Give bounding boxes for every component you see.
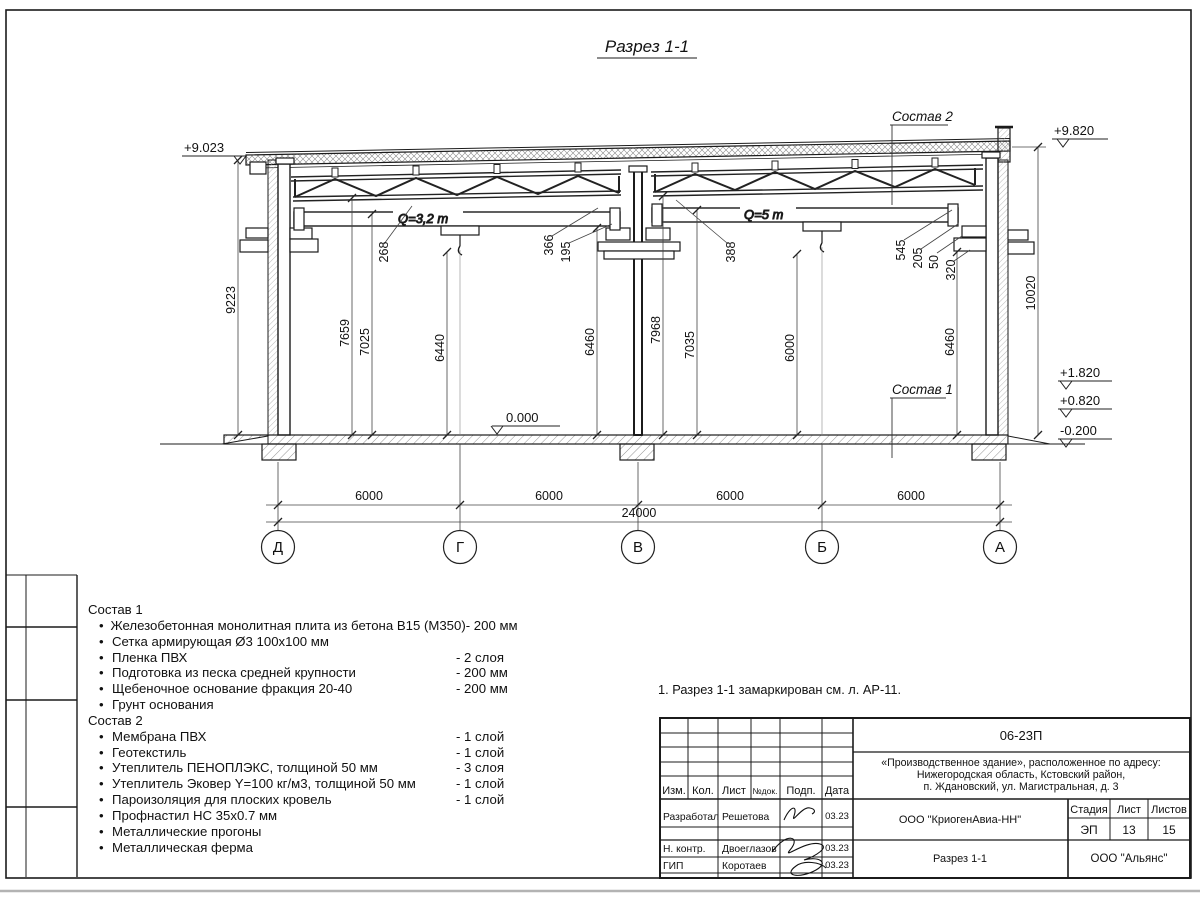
dim-9223: 9223 <box>224 286 238 314</box>
col-list: Лист <box>722 785 746 797</box>
axis-bubbles: Д Г В Б А <box>262 531 1017 564</box>
bullet-icon: • <box>88 618 111 634</box>
col-podp: Подп. <box>786 785 815 797</box>
crane-capacity-right: Q=5 т <box>744 207 784 222</box>
bullet-icon: • <box>88 776 112 792</box>
elevation-floor: 0.000 <box>506 410 539 425</box>
row2-name: Двоеглазов <box>722 844 777 855</box>
col-data: Дата <box>825 785 850 797</box>
bullet-icon: • <box>88 840 112 856</box>
list-item: •Сетка армирующая Ø3 100х100 мм <box>88 634 540 650</box>
dim-366: 366 <box>542 235 556 256</box>
signature-1 <box>784 808 814 820</box>
sheet-note: 1. Разрез 1-1 замаркирован см. л. АР-11. <box>658 682 901 697</box>
item-name: Сетка армирующая Ø3 100х100 мм <box>112 634 456 650</box>
sostav1-title: Состав 1 <box>88 602 540 618</box>
list-item: •Мембрана ПВХ- 1 слой <box>88 729 540 745</box>
axis-G: Г <box>456 539 464 556</box>
item-value: - 200 мм <box>466 618 540 634</box>
list-item: •Подготовка из песка средней крупности- … <box>88 665 540 681</box>
column-right <box>954 152 1034 435</box>
row1-role: Разработал <box>663 811 719 823</box>
foundation-middle <box>620 444 654 460</box>
crane-trolley-left <box>441 226 479 235</box>
truss-right <box>651 158 983 196</box>
item-value <box>456 808 540 824</box>
elevation-0820: +0.820 <box>1060 393 1100 408</box>
item-name: Мембрана ПВХ <box>112 729 456 745</box>
dim-7025: 7025 <box>358 328 372 356</box>
col-izm: Изм. <box>662 785 686 797</box>
item-value: - 200 мм <box>456 681 540 697</box>
bullet-icon: • <box>88 634 112 650</box>
dim-6000-hook: 6000 <box>783 334 797 362</box>
sheet-value: 13 <box>1122 823 1136 837</box>
bullet-icon: • <box>88 808 112 824</box>
list-item: •Утеплитель Эковер Y=100 кг/м3, толщиной… <box>88 776 540 792</box>
col-kol: Кол. <box>692 785 714 797</box>
elevation-1820: +1.820 <box>1060 365 1100 380</box>
list-item: •Профнастил НС 35х0.7 мм <box>88 808 540 824</box>
page-title: Разрез 1-1 <box>597 37 697 58</box>
row1-name: Решетова <box>722 812 769 823</box>
item-name: Железобетонная монолитная плита из бетон… <box>111 618 466 634</box>
item-value <box>456 697 540 713</box>
floor-slab <box>160 435 1085 460</box>
item-name: Щебеночное основание фракция 20-40 <box>112 681 456 697</box>
roof-edge-left <box>250 162 266 174</box>
corbel-right-inner <box>962 226 986 237</box>
project-address-2: Нижегородская область, Кстовский район, <box>917 769 1125 781</box>
item-name: Пароизоляция для плоских кровель <box>112 792 456 808</box>
item-value: - 200 мм <box>456 665 540 681</box>
dim-6000-2: 6000 <box>535 489 563 503</box>
bullet-icon: • <box>88 665 112 681</box>
bullet-icon: • <box>88 681 112 697</box>
dim-50: 50 <box>927 255 941 269</box>
company-name: ООО "КриогенАвиа-НН" <box>899 814 1021 826</box>
crane-capacity-left: Q=3,2 т <box>398 211 448 226</box>
sheets-label: Листов <box>1151 804 1187 816</box>
dim-388: 388 <box>724 242 738 263</box>
bullet-icon: • <box>88 697 112 713</box>
item-value <box>456 824 540 840</box>
list-item: •Пароизоляция для плоских кровель- 1 сло… <box>88 792 540 808</box>
corbel-middle-right <box>646 228 670 240</box>
row2-date: 03.23 <box>825 843 849 854</box>
sheets-value: 15 <box>1162 823 1176 837</box>
bullet-icon: • <box>88 792 112 808</box>
list-item: •Геотекстиль- 1 слой <box>88 745 540 761</box>
dim-195: 195 <box>559 242 573 263</box>
item-value: - 1 слой <box>456 792 540 808</box>
list-item: •Щебеночное основание фракция 20-40- 200… <box>88 681 540 697</box>
bullet-icon: • <box>88 729 112 745</box>
item-value <box>456 840 540 856</box>
list-item: •Утеплитель ПЕНОПЛЭКС, толщиной 50 мм- 3… <box>88 760 540 776</box>
crane-trolley-right <box>803 222 841 231</box>
row1-date: 03.23 <box>825 811 849 822</box>
dim-6000-4: 6000 <box>897 489 925 503</box>
org-name: ООО "Альянс" <box>1091 853 1168 865</box>
dim-7659: 7659 <box>338 319 352 347</box>
dim-6440: 6440 <box>433 334 447 362</box>
axis-V: В <box>633 539 643 556</box>
elevation-minus0200: -0.200 <box>1060 423 1097 438</box>
bullet-icon: • <box>88 650 112 666</box>
axis-D: Д <box>273 539 283 556</box>
item-name: Грунт основания <box>112 697 456 713</box>
drawing-sheet: Разрез 1-1 <box>0 0 1200 900</box>
item-name: Металлическая ферма <box>112 840 456 856</box>
dim-205: 205 <box>911 248 925 269</box>
item-name: Утеплитель ПЕНОПЛЭКС, толщиной 50 мм <box>112 760 456 776</box>
item-value: - 1 слой <box>456 745 540 761</box>
sostav2-title: Состав 2 <box>88 713 540 729</box>
col-ndok: №док. <box>753 786 778 796</box>
item-value <box>456 634 540 650</box>
item-value: - 3 слоя <box>456 760 540 776</box>
dim-268: 268 <box>377 242 391 263</box>
title-block-text: 06-23П «Производственное здание», распол… <box>662 728 1187 872</box>
bracket-left-outer <box>246 228 268 238</box>
bracket-right-outer <box>1008 230 1028 240</box>
list-item: •Железобетонная монолитная плита из бето… <box>88 618 540 634</box>
foundation-left <box>262 444 296 460</box>
dim-7968: 7968 <box>649 316 663 344</box>
composition-leaders: Состав 2 Состав 1 <box>890 109 953 458</box>
item-name: Металлические прогоны <box>112 824 456 840</box>
truss-left <box>291 163 621 201</box>
list-item: •Металлические прогоны <box>88 824 540 840</box>
dim-545: 545 <box>894 240 908 261</box>
item-value: - 2 слоя <box>456 650 540 666</box>
doc-number: 06-23П <box>1000 728 1043 743</box>
foundation-right <box>972 444 1006 460</box>
item-name: Подготовка из песка средней крупности <box>112 665 456 681</box>
sostav1-ref-label: Состав 1 <box>892 382 953 397</box>
dim-7035: 7035 <box>683 331 697 359</box>
stage-label: Стадия <box>1070 804 1108 816</box>
list-item: •Грунт основания <box>88 697 540 713</box>
dim-6000-1: 6000 <box>355 489 383 503</box>
bullet-icon: • <box>88 824 112 840</box>
column-middle <box>598 166 680 435</box>
composition-lists: Состав 1 •Железобетонная монолитная плит… <box>88 602 540 856</box>
crane-beam-right: Q=5 т <box>652 204 958 252</box>
dim-6460-right: 6460 <box>943 328 957 356</box>
row3-name: Коротаев <box>722 861 767 872</box>
row3-role: ГИП <box>663 861 683 872</box>
axis-B: Б <box>817 539 827 556</box>
stage-value: ЭП <box>1080 823 1097 837</box>
item-name: Утеплитель Эковер Y=100 кг/м3, толщиной … <box>112 776 456 792</box>
item-name: Геотекстиль <box>112 745 456 761</box>
dim-6460-left: 6460 <box>583 328 597 356</box>
project-address-1: «Производственное здание», расположенное… <box>881 757 1160 769</box>
bullet-icon: • <box>88 745 112 761</box>
dim-24000: 24000 <box>622 506 657 520</box>
bullet-icon: • <box>88 760 112 776</box>
axis-A: А <box>995 539 1005 556</box>
elevation-roof-left: +9.023 <box>184 140 224 155</box>
column-left <box>240 158 318 435</box>
list-item: •Пленка ПВХ- 2 слоя <box>88 650 540 666</box>
elevation-roof-right: +9.820 <box>1054 123 1094 138</box>
item-value: - 1 слой <box>456 776 540 792</box>
row3-date: 03.23 <box>825 860 849 871</box>
row2-role: Н. контр. <box>663 844 706 855</box>
sheet-label: Лист <box>1117 804 1141 816</box>
sostav2-ref-label: Состав 2 <box>892 109 953 124</box>
item-name: Профнастил НС 35х0.7 мм <box>112 808 456 824</box>
dim-6000-3: 6000 <box>716 489 744 503</box>
section-name: Разрез 1-1 <box>933 853 987 865</box>
dim-320: 320 <box>944 260 958 281</box>
item-name: Пленка ПВХ <box>112 650 456 666</box>
dim-10020: 10020 <box>1024 276 1038 311</box>
project-address-3: п. Ждановский, ул. Магистральная, д. 3 <box>923 781 1118 793</box>
item-value: - 1 слой <box>456 729 540 745</box>
drawing-title: Разрез 1-1 <box>605 37 689 56</box>
list-item: •Металлическая ферма <box>88 840 540 856</box>
